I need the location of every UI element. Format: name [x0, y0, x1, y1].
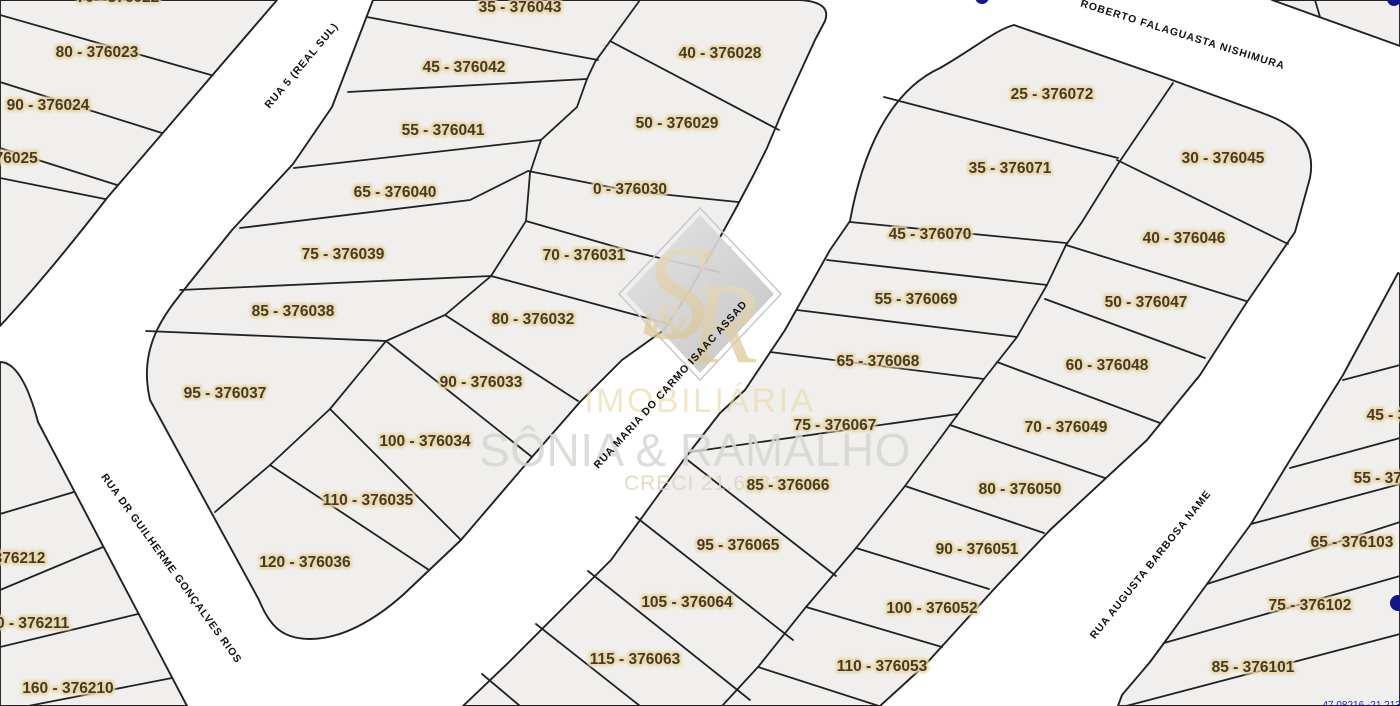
- svg-text:50 - 376029: 50 - 376029: [636, 115, 719, 132]
- svg-text:35 - 376043: 35 - 376043: [479, 0, 562, 16]
- svg-text:80 - 376050: 80 - 376050: [979, 481, 1062, 498]
- svg-text:85 - 376038: 85 - 376038: [252, 303, 335, 320]
- svg-text:70 - 376022: 70 - 376022: [77, 0, 160, 6]
- svg-text:✦: ✦: [707, 281, 714, 290]
- svg-text:65 - 376040: 65 - 376040: [354, 184, 437, 201]
- svg-text:75 - 376067: 75 - 376067: [794, 417, 877, 434]
- svg-text:40 - 376046: 40 - 376046: [1143, 230, 1226, 247]
- svg-text:0 - 376030: 0 - 376030: [593, 181, 667, 198]
- svg-text:95 - 376065: 95 - 376065: [697, 537, 780, 554]
- svg-text:160 - 376210: 160 - 376210: [22, 680, 113, 697]
- svg-text:✦: ✦: [719, 267, 728, 279]
- svg-text:90 - 376024: 90 - 376024: [7, 97, 90, 114]
- svg-text:65 - 376068: 65 - 376068: [837, 353, 920, 370]
- svg-text:115 - 376063: 115 - 376063: [590, 651, 681, 668]
- svg-text:70 - 376031: 70 - 376031: [543, 247, 626, 264]
- svg-text:75 - 376102: 75 - 376102: [1269, 597, 1352, 614]
- svg-text:✦: ✦: [727, 243, 734, 252]
- svg-text:85 - 376066: 85 - 376066: [747, 477, 830, 494]
- svg-text:100 - 376052: 100 - 376052: [886, 600, 977, 617]
- svg-text:45 - 376042: 45 - 376042: [423, 59, 506, 76]
- svg-text:85 - 376101: 85 - 376101: [1212, 659, 1295, 676]
- svg-text:65 - 376103: 65 - 376103: [1311, 534, 1394, 551]
- svg-text:70 - 376049: 70 - 376049: [1025, 419, 1108, 436]
- svg-text:150 - 376211: 150 - 376211: [0, 615, 70, 632]
- svg-text:120 - 376036: 120 - 376036: [259, 554, 351, 571]
- svg-text:95 - 376037: 95 - 376037: [184, 385, 267, 402]
- svg-text:80 - 376032: 80 - 376032: [492, 311, 575, 328]
- svg-text:55 - 376041: 55 - 376041: [402, 122, 485, 139]
- svg-text:80 - 376023: 80 - 376023: [56, 44, 139, 61]
- svg-text:60 - 376048: 60 - 376048: [1066, 357, 1149, 374]
- svg-text:30 - 376212: 30 - 376212: [0, 550, 45, 567]
- svg-text:55 - 376069: 55 - 376069: [875, 291, 958, 308]
- svg-text:45 - 376105: 45 - 376105: [1367, 407, 1400, 424]
- svg-text:35 - 376071: 35 - 376071: [969, 160, 1052, 177]
- svg-text:75 - 376039: 75 - 376039: [302, 246, 385, 263]
- svg-text:100 - 376034: 100 - 376034: [379, 433, 471, 450]
- svg-text:90 - 376051: 90 - 376051: [936, 541, 1019, 558]
- svg-text:IMOBILIÁRIA: IMOBILIÁRIA: [584, 382, 816, 420]
- svg-text:&: &: [650, 293, 691, 350]
- svg-text:105 - 376064: 105 - 376064: [641, 594, 733, 611]
- svg-text:✦: ✦: [700, 245, 717, 267]
- svg-text:30 - 376045: 30 - 376045: [1182, 150, 1265, 167]
- svg-text:47.08216 -21.21349: 47.08216 -21.21349: [1322, 700, 1400, 706]
- svg-text:55 - 376104: 55 - 376104: [1354, 470, 1400, 487]
- svg-text:110 - 376053: 110 - 376053: [837, 658, 928, 675]
- svg-text:50 - 376047: 50 - 376047: [1105, 294, 1188, 311]
- svg-text:40 - 376028: 40 - 376028: [679, 45, 762, 62]
- svg-text:90 - 376033: 90 - 376033: [440, 374, 523, 391]
- svg-text:45 - 376070: 45 - 376070: [889, 226, 972, 243]
- svg-text:25 - 376072: 25 - 376072: [1011, 86, 1094, 103]
- svg-text:100 - 376025: 100 - 376025: [0, 150, 38, 167]
- svg-text:110 - 376035: 110 - 376035: [323, 492, 414, 509]
